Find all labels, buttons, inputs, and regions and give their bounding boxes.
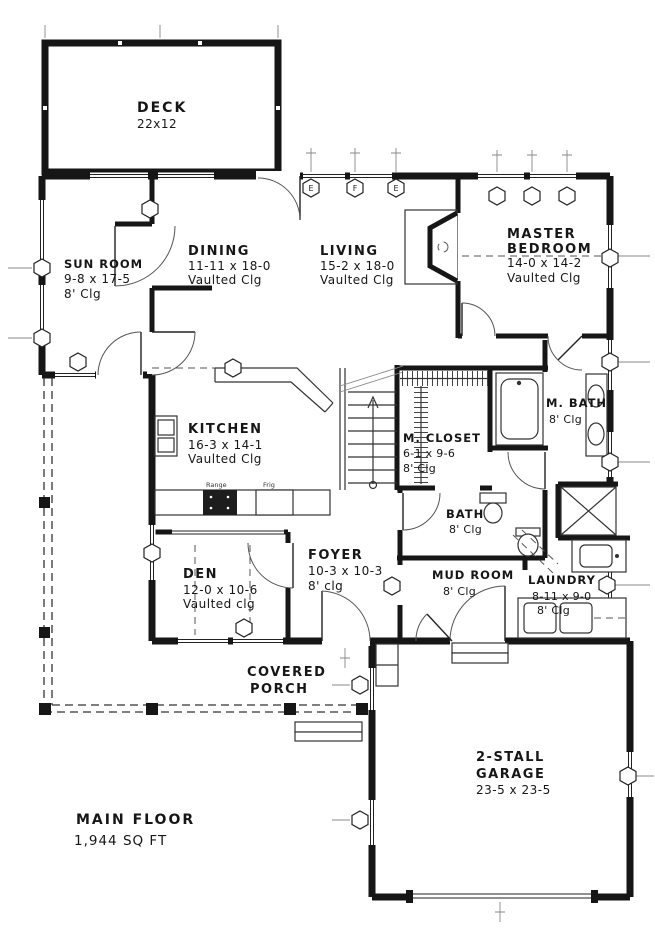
room-label2: PORCH — [250, 682, 309, 697]
door-deck-dining — [258, 176, 300, 220]
window-marker-icon — [489, 187, 505, 205]
washer-dryer — [518, 598, 626, 638]
room-label2: GARAGE — [476, 767, 545, 782]
room-clg: 8' clg — [308, 579, 343, 593]
window-marker-icon — [602, 353, 618, 371]
window — [55, 372, 95, 379]
frig-label: Frig — [263, 481, 275, 489]
bathtub — [496, 373, 543, 445]
deck-post — [276, 106, 280, 110]
garage-steps — [452, 643, 508, 663]
kitchen-sink — [155, 416, 177, 456]
room-label: DECK — [137, 100, 187, 116]
room-dims: 23-5 x 23-5 — [476, 783, 551, 797]
porch-step — [295, 722, 362, 741]
window — [233, 638, 283, 645]
room-foyer: FOYER 10-3 x 10-3 8' clg — [308, 548, 383, 593]
room-dims: 11-11 x 18-0 — [188, 259, 271, 273]
kitchen-counter — [155, 490, 330, 515]
window-marker-icon — [602, 249, 618, 267]
room-master-bedroom: MASTER BEDROOM 14-0 x 14-2 Vaulted Clg — [507, 227, 592, 285]
staircase — [340, 366, 403, 490]
window-marker-icon — [352, 676, 368, 694]
window — [178, 638, 228, 645]
room-dims: 14-0 x 14-2 — [507, 256, 582, 270]
bath-fixtures — [480, 493, 540, 556]
window — [350, 173, 392, 180]
room-deck: DECK 22x12 — [137, 100, 187, 131]
window-marker-icon — [599, 576, 615, 594]
window-marker-icon — [236, 619, 252, 637]
deck-post — [118, 41, 122, 45]
fireplace — [405, 210, 457, 284]
window — [158, 173, 214, 180]
range-label: Range — [206, 481, 227, 489]
door-marker-icon — [142, 200, 158, 218]
room-living: LIVING 15-2 x 18-0 Vaulted Clg — [320, 244, 395, 287]
door-marker-icon — [384, 577, 400, 595]
room-den: DEN 12-0 x 10-6 Vaulted clg — [183, 567, 258, 611]
room-clg: 8' Clg — [64, 287, 101, 301]
room-clg: 8' Clg — [403, 462, 436, 475]
porch-post — [39, 703, 51, 715]
porch-post — [39, 497, 50, 508]
window — [369, 668, 376, 710]
room-covered-porch: COVERED PORCH — [247, 665, 326, 697]
porch-post — [39, 627, 50, 638]
room-label2: BEDROOM — [507, 242, 592, 257]
room-dims: 15-2 x 18-0 — [320, 259, 395, 273]
door-bath — [403, 493, 440, 530]
room-label: KITCHEN — [188, 422, 262, 437]
room-dims: 22x12 — [137, 117, 177, 131]
room-label: MUD ROOM — [432, 568, 514, 582]
room-clg: Vaulted Clg — [188, 452, 262, 466]
window — [90, 173, 148, 180]
room-clg: Vaulted Clg — [188, 273, 262, 287]
cased-opening — [172, 529, 284, 536]
floor-title: MAIN FLOOR — [76, 812, 195, 828]
room-label: DINING — [188, 244, 250, 259]
window-marker-icon — [34, 329, 50, 347]
window-marker-icon — [559, 187, 575, 205]
floor-plan: Range Frig — [0, 0, 655, 945]
room-label: LIVING — [320, 244, 379, 259]
room-label: 2-STALL — [476, 750, 545, 765]
plan-footer: MAIN FLOOR 1,944 SQ FT — [74, 812, 195, 849]
range — [203, 490, 237, 515]
porch-post — [284, 703, 296, 715]
deck-post — [198, 41, 202, 45]
room-label: MASTER — [507, 227, 576, 242]
room-clg: 8' Clg — [443, 585, 476, 598]
door-garage-entry — [416, 614, 452, 641]
room-dims: 10-3 x 10-3 — [308, 564, 383, 578]
room-label: M. CLOSET — [403, 431, 481, 445]
room-garage: 2-STALL GARAGE 23-5 x 23-5 — [476, 750, 551, 797]
door-sunroom-kitchen — [152, 332, 195, 375]
room-dims: 8-11 x 9-0 — [532, 590, 591, 603]
room-label: COVERED — [247, 665, 326, 680]
door-marker-icon — [70, 353, 86, 371]
svg-text:F: F — [353, 184, 358, 193]
room-dims: 12-0 x 10-6 — [183, 583, 258, 597]
svg-text:E: E — [308, 184, 313, 193]
room-label: LAUNDRY — [528, 573, 596, 587]
floor-plan-svg: Range Frig — [0, 0, 655, 945]
window-marker-icon: E — [303, 179, 319, 197]
room-label: M. BATH — [546, 396, 607, 410]
room-clg: Vaulted Clg — [320, 273, 394, 287]
floor-area: 1,944 SQ FT — [74, 833, 167, 849]
window — [369, 800, 376, 845]
door-front-entry — [322, 591, 370, 641]
room-sun-room: SUN ROOM 9-8 x 17-5 8' Clg — [64, 257, 143, 301]
shower — [561, 487, 616, 535]
porch-post — [356, 703, 368, 715]
svg-text:E: E — [393, 184, 398, 193]
window — [39, 200, 46, 262]
room-clg: 8' Clg — [549, 413, 582, 426]
window-marker-icon — [620, 767, 636, 785]
window-marker-icon — [524, 187, 540, 205]
door-mbath-hall — [508, 452, 545, 489]
room-clg: 8' Clg — [537, 604, 570, 617]
porch-post — [146, 703, 158, 715]
room-clg: Vaulted Clg — [507, 271, 581, 285]
room-master-closet: M. CLOSET 6-1 x 9-6 8' Clg — [403, 431, 481, 475]
deck-post — [43, 106, 47, 110]
room-mud-room: MUD ROOM 8' Clg — [432, 568, 514, 598]
room-label: BATH — [446, 507, 484, 521]
room-label: DEN — [183, 567, 218, 582]
window — [530, 173, 576, 180]
window-marker-icon — [602, 453, 618, 471]
room-label: FOYER — [308, 548, 363, 563]
window-marker-icon: E — [388, 179, 404, 197]
refrigerator — [256, 490, 293, 515]
window-marker-icon — [352, 811, 368, 829]
laundry-sink — [572, 540, 626, 572]
window-marker-icon — [144, 544, 160, 562]
window-marker-icon — [34, 259, 50, 277]
room-bath: BATH 8' Clg — [446, 507, 484, 536]
room-clg: 8' Clg — [449, 523, 482, 536]
window — [303, 173, 345, 180]
room-label: SUN ROOM — [64, 257, 143, 271]
room-dims: 9-8 x 17-5 — [64, 272, 131, 286]
room-dims: 16-3 x 14-1 — [188, 438, 263, 452]
pedestal-sink — [516, 528, 540, 556]
room-kitchen: KITCHEN 16-3 x 14-1 Vaulted Clg — [188, 422, 263, 466]
door-master-bath — [548, 336, 582, 370]
door-sunroom-porch — [98, 332, 141, 375]
window-marker-icon: F — [347, 179, 363, 197]
room-clg: Vaulted clg — [183, 597, 255, 611]
vanity-double-sink — [586, 374, 607, 456]
room-dims: 6-1 x 9-6 — [403, 447, 455, 460]
room-dining: DINING 11-11 x 18-0 Vaulted Clg — [188, 244, 271, 287]
dimension-ticks — [8, 25, 654, 922]
window — [478, 173, 524, 180]
window-marker-icon — [225, 359, 241, 377]
